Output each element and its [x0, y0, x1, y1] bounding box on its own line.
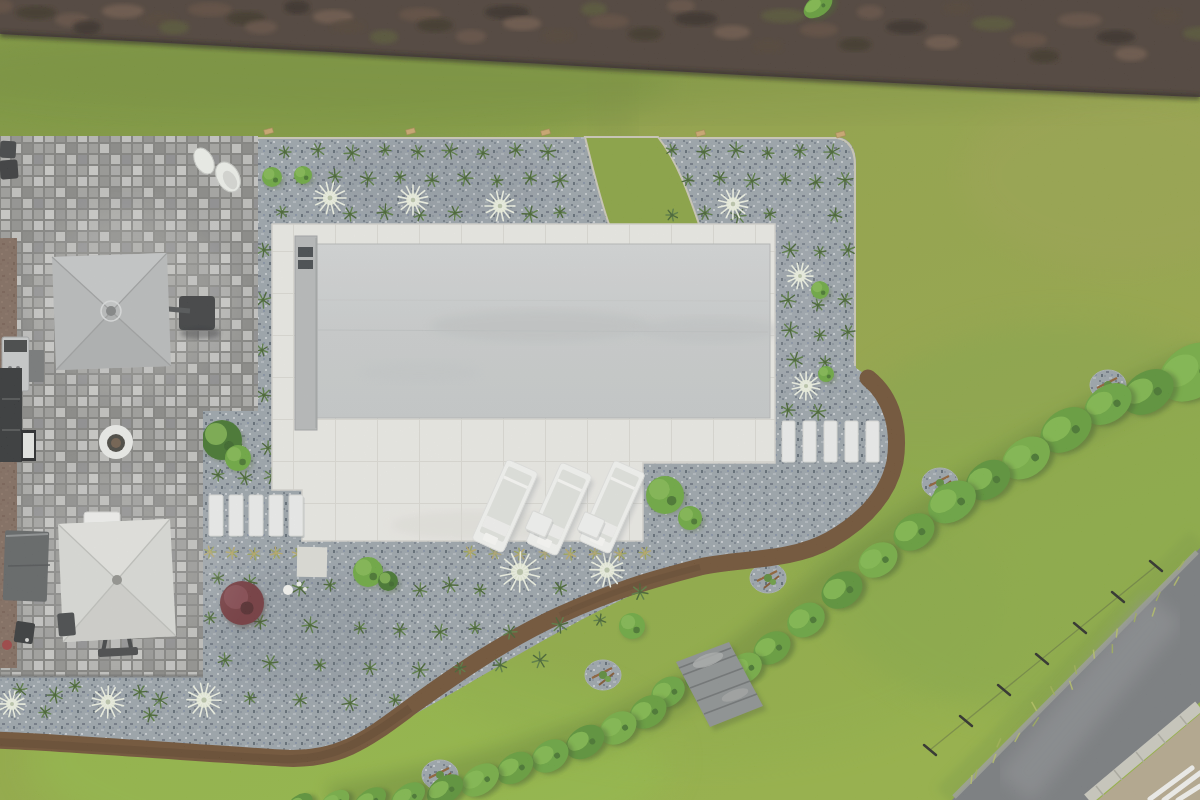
photo-grain-overlay: [0, 0, 1200, 800]
aerial-garden-photo: [0, 0, 1200, 800]
scene-svg: [0, 0, 1200, 800]
